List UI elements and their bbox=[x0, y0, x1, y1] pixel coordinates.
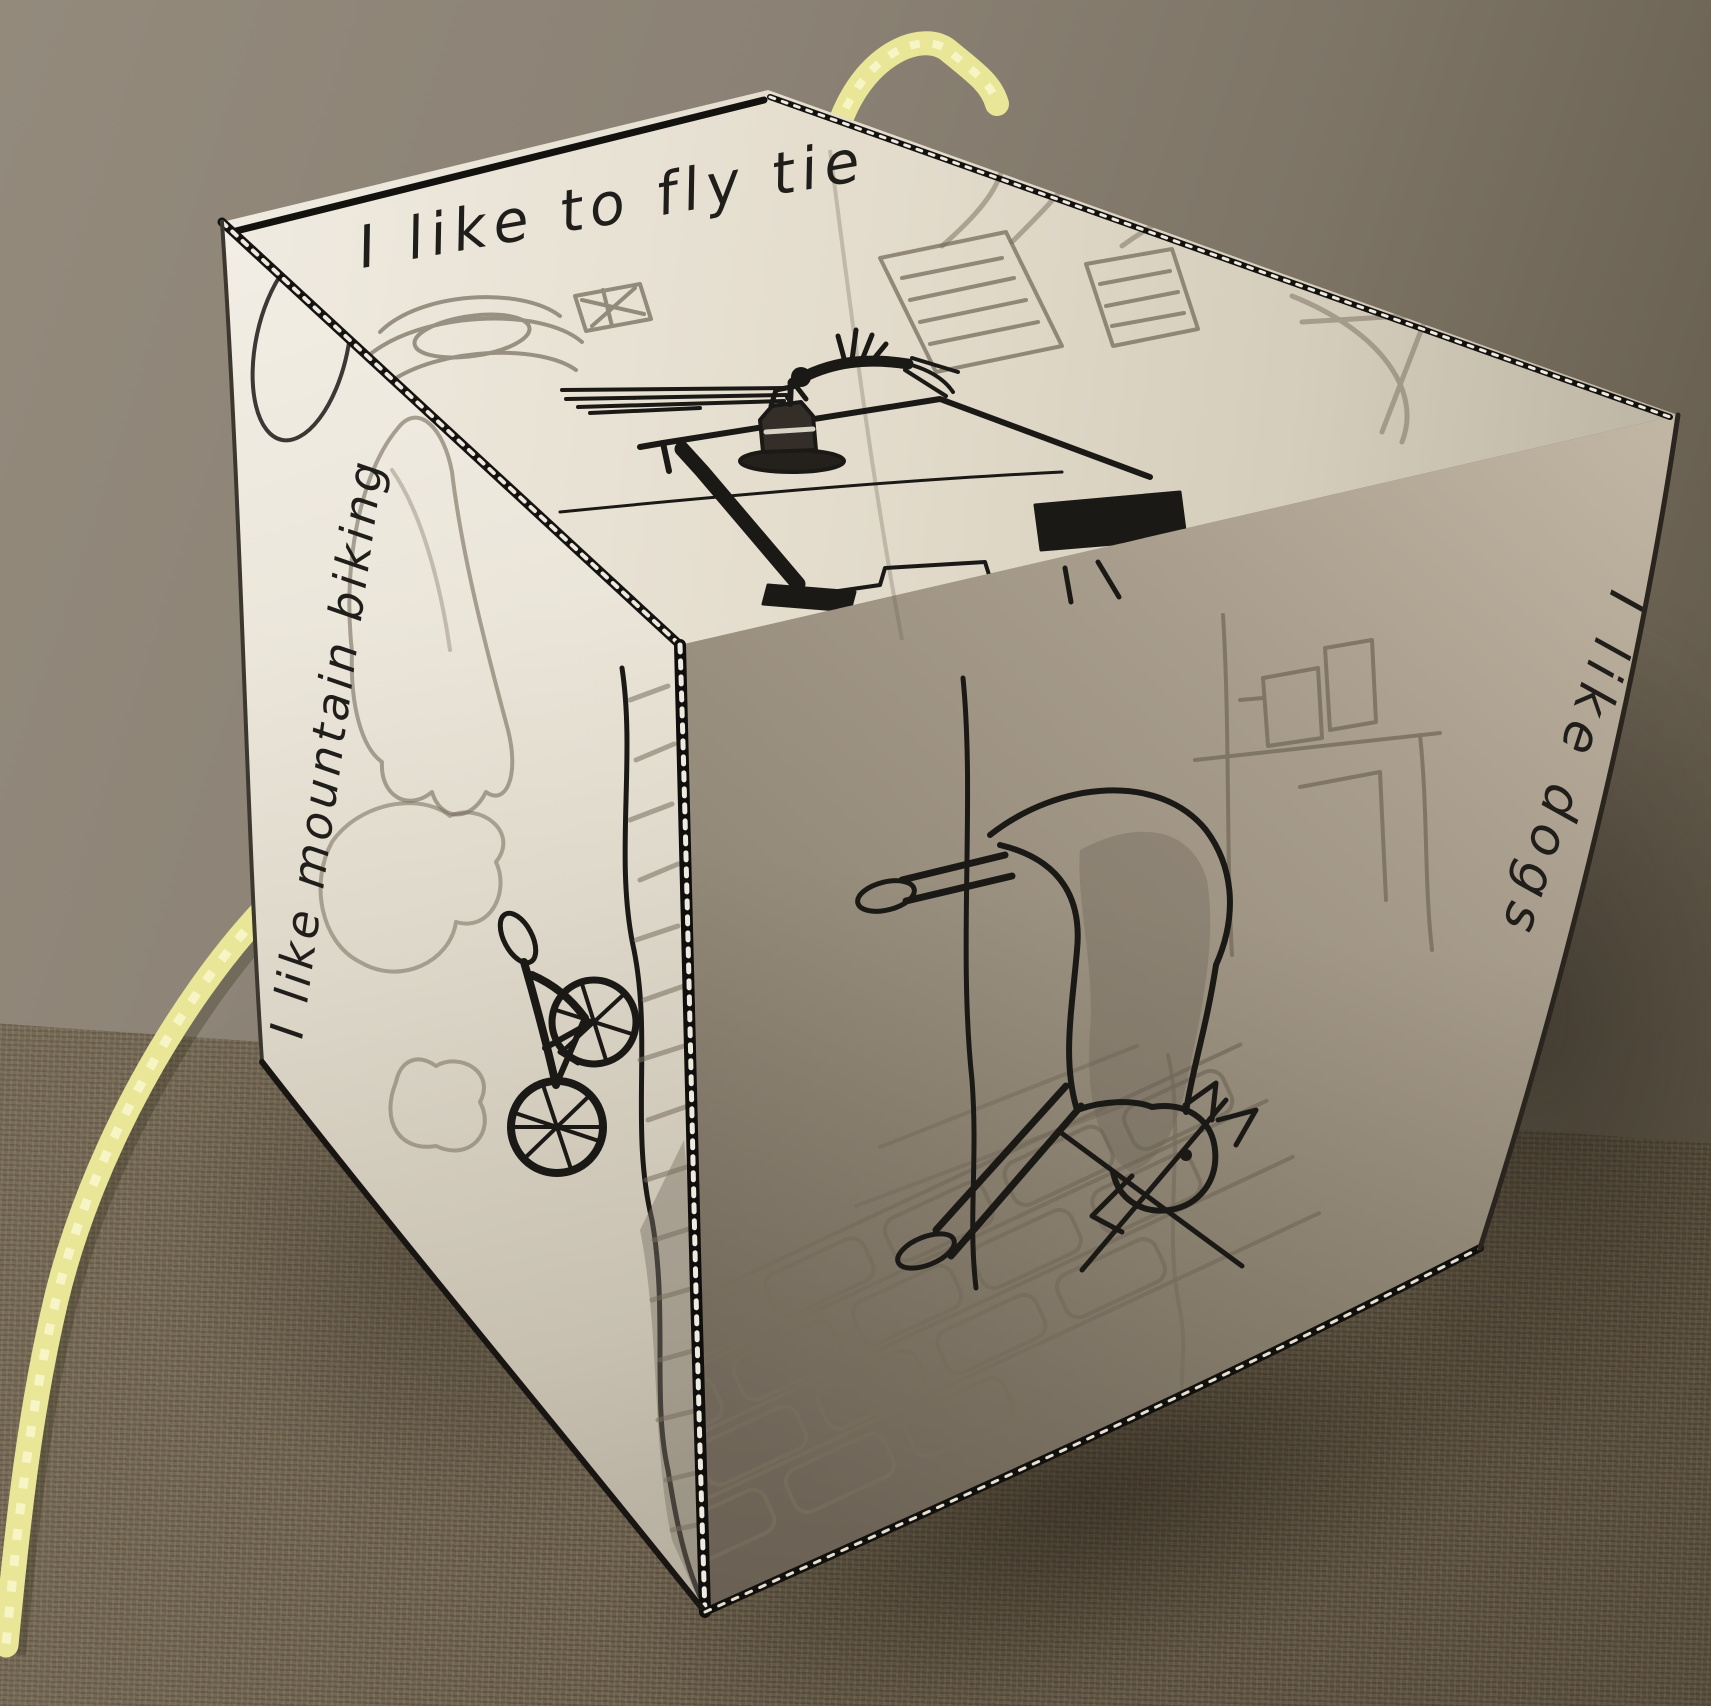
paper-cube-scene: I like to fly tie bbox=[0, 0, 1711, 1706]
yarn-strand-twist bbox=[6, 912, 262, 1645]
photo-stage: I like to fly tie bbox=[0, 0, 1711, 1706]
yarn-strand bbox=[6, 912, 262, 1645]
